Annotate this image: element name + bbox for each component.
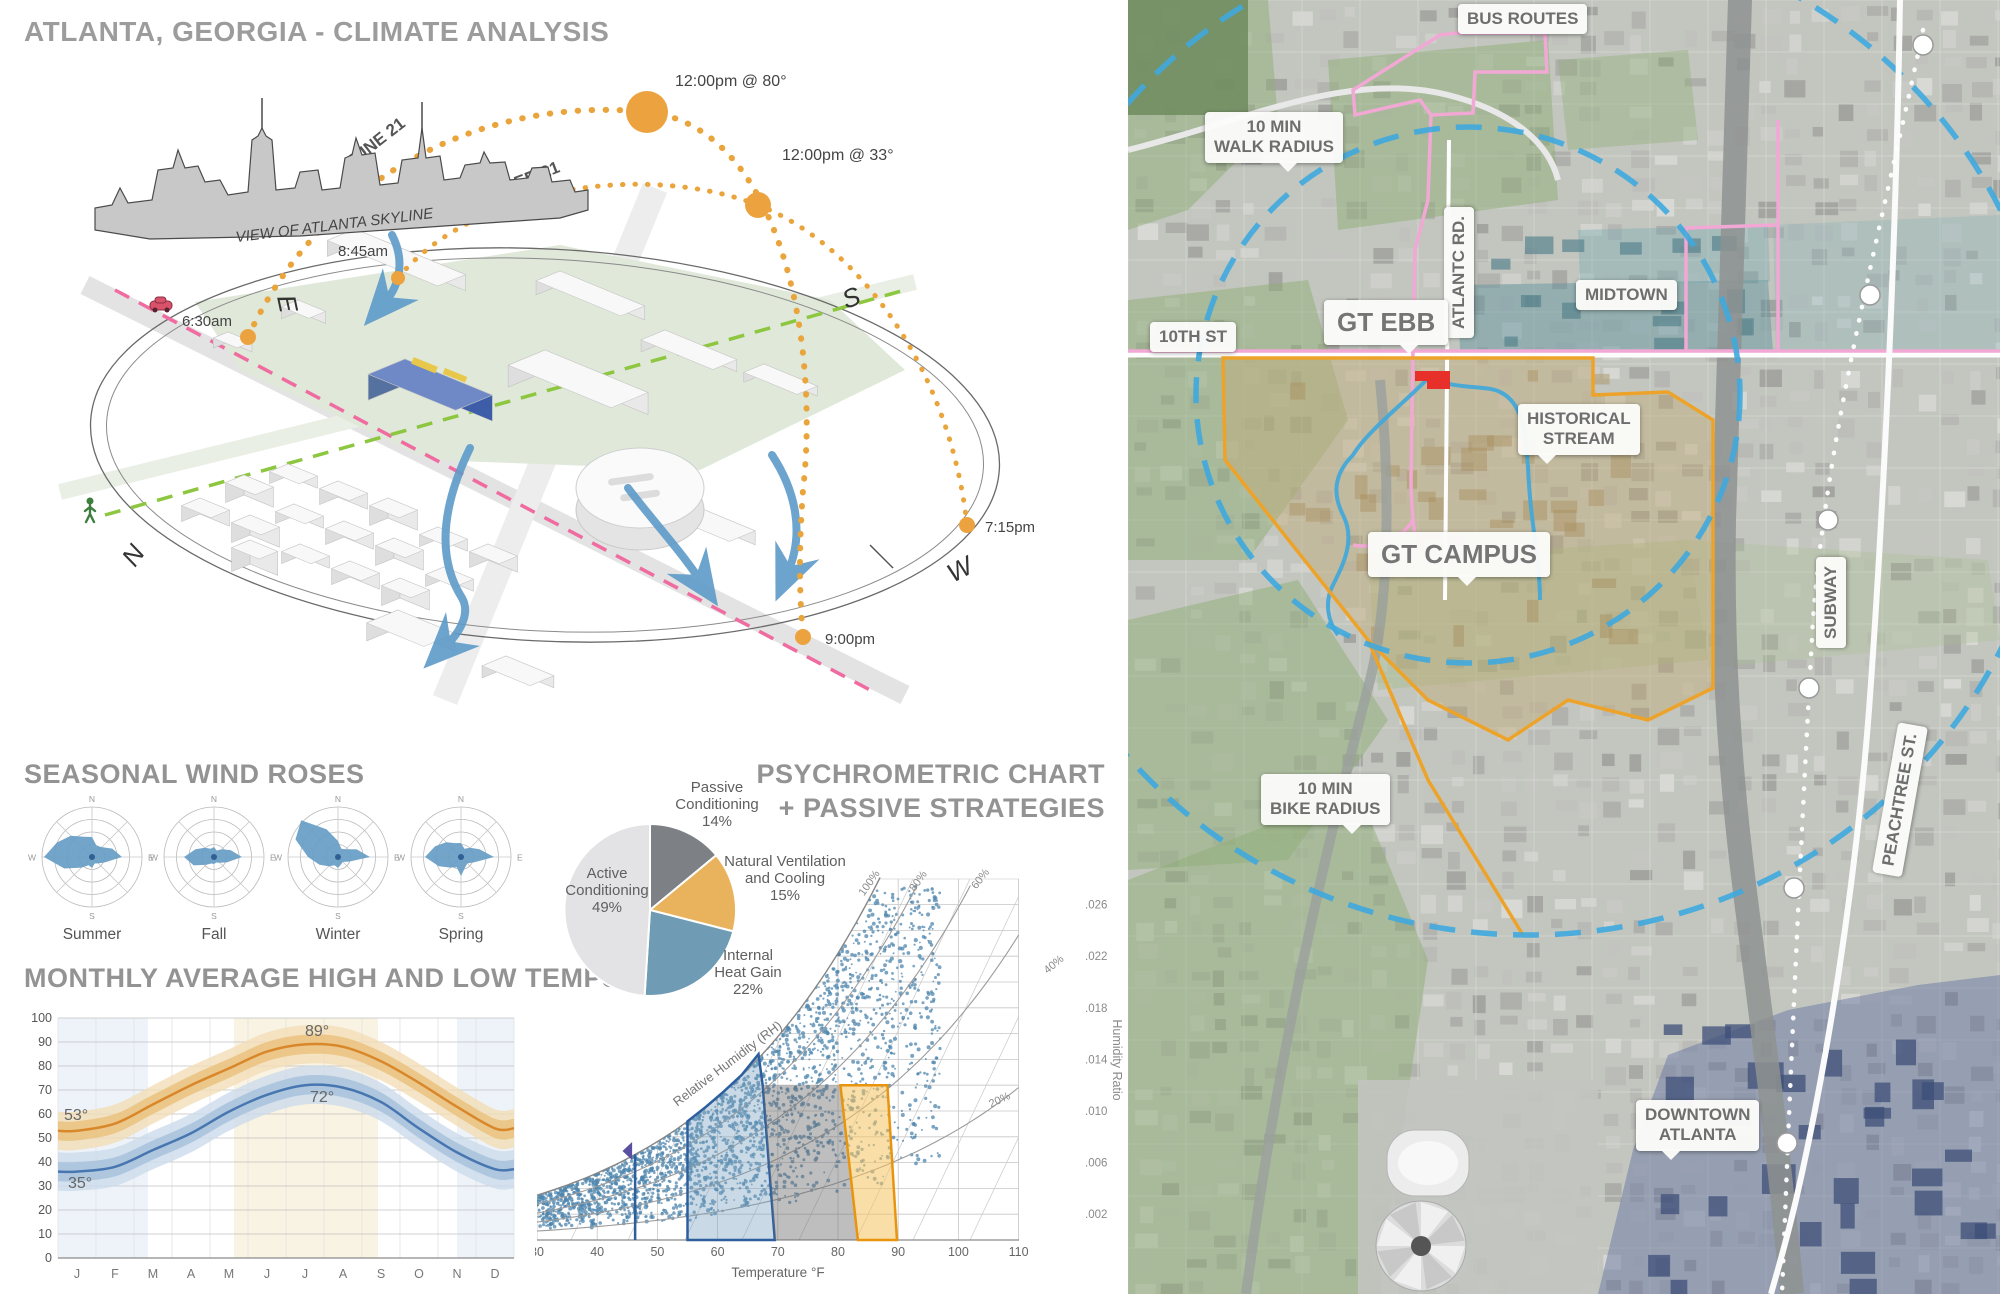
strategy-marker-arrow <box>622 1142 632 1160</box>
svg-text:J: J <box>74 1267 80 1281</box>
wind-rose-fall: NESWFall <box>150 795 276 943</box>
svg-text:.018: .018 <box>1085 1003 1107 1015</box>
svg-text:70: 70 <box>771 1245 785 1259</box>
sunrise-summer-label: 6:30am <box>182 313 232 330</box>
svg-text:90: 90 <box>38 1035 52 1049</box>
sunrise-winter-dot <box>391 271 405 285</box>
compass-north: N <box>115 539 150 572</box>
svg-text:40: 40 <box>590 1245 604 1259</box>
temp-annotation: 53° <box>64 1107 88 1124</box>
svg-text:50: 50 <box>38 1131 52 1145</box>
svg-text:J: J <box>264 1267 270 1281</box>
svg-text:10: 10 <box>38 1227 52 1241</box>
svg-text:.010: .010 <box>1085 1106 1107 1118</box>
svg-text:A: A <box>339 1267 348 1281</box>
stadium-pinwheel <box>1376 1201 1466 1291</box>
map-green-area <box>1558 50 1698 150</box>
svg-text:W: W <box>397 853 405 863</box>
svg-text:S: S <box>335 911 341 921</box>
svg-text:110: 110 <box>1009 1245 1029 1259</box>
svg-text:J: J <box>302 1267 308 1281</box>
svg-text:90: 90 <box>891 1245 905 1259</box>
rh-curve-label: 40% <box>1042 953 1067 976</box>
svg-text:S: S <box>377 1267 385 1281</box>
sunset-winter-label: 7:15pm <box>985 519 1035 536</box>
svg-text:.006: .006 <box>1085 1158 1107 1170</box>
svg-text:M: M <box>148 1267 158 1281</box>
temps-heading: MONTHLY AVERAGE HIGH AND LOW TEMPS <box>24 962 621 996</box>
svg-text:50: 50 <box>650 1245 664 1259</box>
rh-curve-label: 100% <box>857 868 883 898</box>
midtown-area <box>1773 215 2000 352</box>
subway-station <box>1913 35 1933 55</box>
pedestrian-icon <box>85 498 95 523</box>
svg-text:20: 20 <box>38 1203 52 1217</box>
wind-rose-season-label: Winter <box>316 926 361 943</box>
psychrometric-heading: PSYCHROMETRIC CHART+ PASSIVE STRATEGIES <box>705 758 1105 826</box>
subway-station <box>1777 1133 1797 1153</box>
sunset-summer-dot <box>795 629 811 645</box>
sun-noon-winter-icon <box>745 192 771 218</box>
svg-text:E: E <box>517 853 523 863</box>
temp-annotation: 72° <box>310 1089 334 1106</box>
svg-text:N: N <box>89 795 95 804</box>
svg-text:.014: .014 <box>1085 1054 1108 1066</box>
sun-noon-summer-icon <box>626 91 668 133</box>
rh-curve-label: 20% <box>987 1090 1012 1110</box>
svg-text:80: 80 <box>38 1059 52 1073</box>
subway-station <box>1799 678 1819 698</box>
wind-rose-summer: NESWSummer <box>28 795 154 943</box>
sun-path-diagram: JUNE 21 DECEMBER 21 12:00pm @ 80° 12:00p… <box>0 40 1128 780</box>
svg-text:40: 40 <box>38 1155 52 1169</box>
wind-rose-season-label: Fall <box>202 926 227 943</box>
svg-text:W: W <box>28 853 36 863</box>
svg-text:N: N <box>211 795 217 804</box>
svg-text:A: A <box>187 1267 196 1281</box>
svg-text:.002: .002 <box>1085 1209 1107 1221</box>
svg-text:30: 30 <box>38 1179 52 1193</box>
psych-ylabel: Humidity Ratio <box>1110 1019 1124 1100</box>
wind-rose-season-label: Spring <box>439 926 484 943</box>
temp-annotation: 35° <box>68 1175 92 1192</box>
svg-text:70: 70 <box>38 1083 52 1097</box>
wind-rose-season-label: Summer <box>63 926 122 943</box>
svg-text:M: M <box>224 1267 234 1281</box>
svg-text:80: 80 <box>831 1245 845 1259</box>
wind-roses-heading: SEASONAL WIND ROSES <box>24 758 365 792</box>
map-green-area <box>1328 40 1558 230</box>
svg-text:60: 60 <box>711 1245 725 1259</box>
svg-text:0: 0 <box>45 1251 52 1265</box>
svg-text:D: D <box>490 1267 499 1281</box>
psychrometric-chart: 100%80%60%40%20%.002.006.010.014.018.022… <box>535 845 1125 1294</box>
psych-xlabel: Temperature °F <box>731 1265 824 1280</box>
svg-text:O: O <box>414 1267 424 1281</box>
campus-context-map: BUS ROUTES 10 MINWALK RADIUS ATLANTC RD.… <box>1128 0 2000 1294</box>
wind-rose-petals <box>296 820 371 868</box>
psychrometric-heading-line2: + PASSIVE STRATEGIES <box>779 793 1105 823</box>
svg-text:100: 100 <box>948 1245 969 1259</box>
wind-rose-spring: NESWSpring <box>397 795 523 943</box>
subway-station <box>1818 510 1838 530</box>
svg-text:N: N <box>458 795 464 804</box>
seasonal-wind-roses: NESWSummerNESWFallNESWWinterNESWSpring <box>20 795 540 945</box>
svg-text:F: F <box>111 1267 119 1281</box>
atlanta-skyline-silhouette: VIEW OF ATLANTA SKYLINE <box>95 98 588 246</box>
subway-station <box>1784 878 1804 898</box>
climate-analysis-panel: ATLANTA, GEORGIA - CLIMATE ANALYSIS <box>0 0 1128 1294</box>
svg-text:S: S <box>211 911 217 921</box>
compass-west: W <box>942 549 980 588</box>
svg-text:30: 30 <box>535 1245 544 1259</box>
satellite-map <box>1128 0 2000 1294</box>
sunrise-summer-dot <box>240 329 256 345</box>
svg-text:.026: .026 <box>1085 900 1107 912</box>
sun-noon-summer-label: 12:00pm @ 80° <box>675 73 787 90</box>
sun-noon-winter-label: 12:00pm @ 33° <box>782 147 894 164</box>
svg-text:W: W <box>150 853 158 863</box>
svg-text:N: N <box>452 1267 461 1281</box>
svg-text:.022: .022 <box>1085 951 1107 963</box>
svg-text:60: 60 <box>38 1107 52 1121</box>
svg-text:S: S <box>458 911 464 921</box>
svg-text:S: S <box>89 911 95 921</box>
svg-text:W: W <box>274 853 282 863</box>
sunrise-winter-label: 8:45am <box>338 243 388 260</box>
psychrometric-heading-line1: PSYCHROMETRIC CHART <box>756 759 1105 789</box>
ring-tick <box>870 545 893 568</box>
svg-text:N: N <box>335 795 341 804</box>
sunset-summer-label: 9:00pm <box>825 631 875 648</box>
subway-station <box>1860 285 1880 305</box>
sunset-winter-dot <box>959 517 975 533</box>
wind-rose-winter: NESWWinter <box>274 795 400 943</box>
temp-annotation: 89° <box>305 1023 329 1040</box>
monthly-temps-chart: 100908070605040302010089°72°53°35°JFMAMJ… <box>22 1000 527 1292</box>
svg-text:100: 100 <box>31 1011 52 1025</box>
wind-rose-petals <box>44 836 122 869</box>
car-icon <box>150 297 172 313</box>
